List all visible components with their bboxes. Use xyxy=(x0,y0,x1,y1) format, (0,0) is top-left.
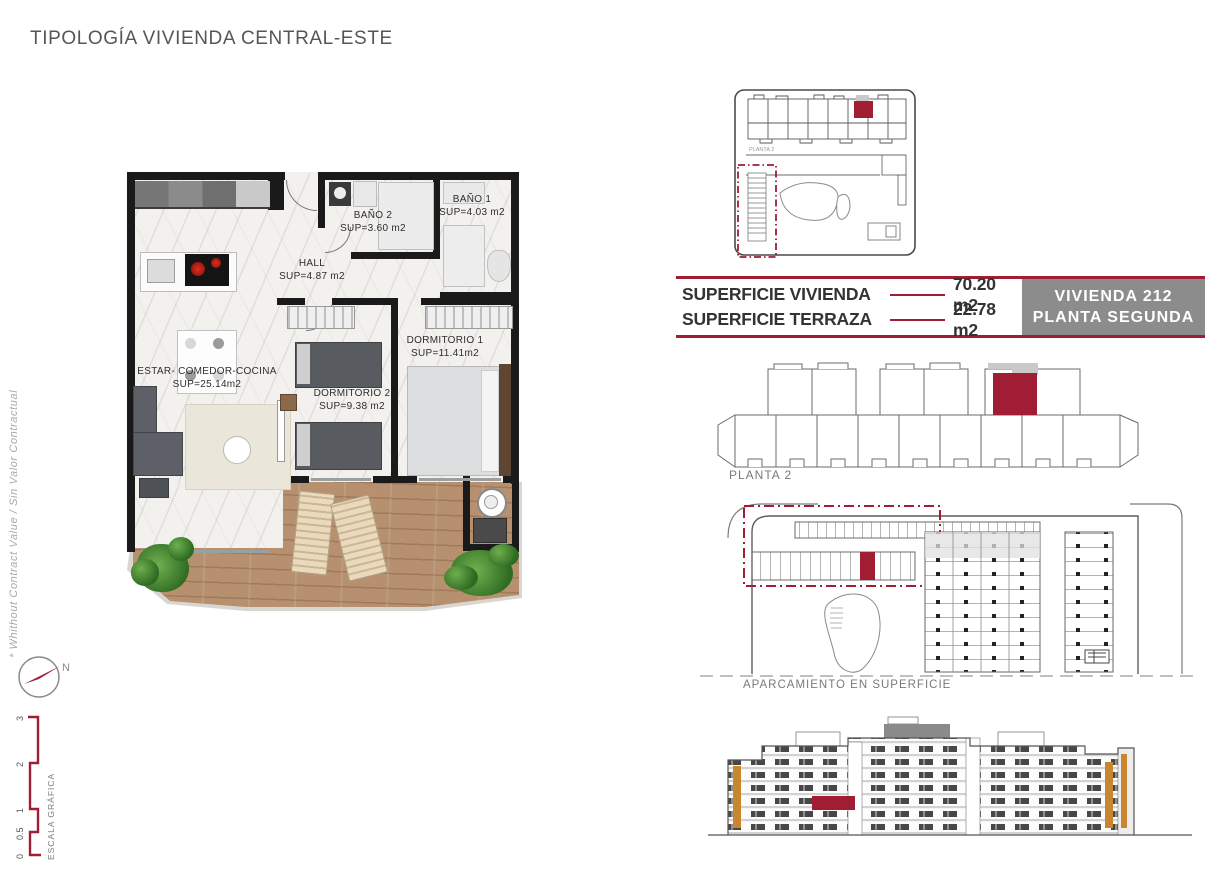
kitchen-sink xyxy=(147,259,175,283)
unit-panel: VIVIENDA 212 PLANTA SEGUNDA xyxy=(1022,279,1205,335)
terrace-door-dorm2 xyxy=(311,478,371,481)
surface-rows: SUPERFICIE VIVIENDA 70.20 m2 SUPERFICIE … xyxy=(676,279,1022,335)
parking-drawing xyxy=(700,492,1195,697)
cooktop-burner xyxy=(211,258,221,268)
plant xyxy=(451,550,513,596)
scale-tick: 3 xyxy=(15,716,25,721)
room-name: DORMITORIO 1 xyxy=(407,334,484,347)
plant xyxy=(137,544,189,592)
wall xyxy=(268,172,284,210)
scale-tick: 1 xyxy=(15,808,25,813)
room-name: BAÑO 2 xyxy=(340,209,406,222)
room-area: SUP=4.03 m2 xyxy=(439,206,505,219)
car-lift xyxy=(1085,650,1109,663)
compass: N xyxy=(16,650,80,706)
wall xyxy=(332,298,394,305)
page-title: TIPOLOGÍA VIVIENDA CENTRAL-ESTE xyxy=(30,28,393,50)
wall xyxy=(463,476,470,550)
wall xyxy=(373,476,417,483)
leader-line xyxy=(890,319,945,321)
dorm1-headboard xyxy=(499,364,511,476)
wall xyxy=(127,172,285,180)
surface-row: SUPERFICIE TERRAZA 22.78 m2 xyxy=(682,307,1014,332)
armchair xyxy=(139,478,169,498)
washer-drum xyxy=(334,187,346,199)
kitchen-counter xyxy=(135,181,270,209)
scale-tick: 0.5 xyxy=(15,827,25,840)
wall xyxy=(433,180,440,258)
scale-tick: 0 xyxy=(15,854,25,859)
wall xyxy=(127,172,135,552)
bath1-shower xyxy=(443,225,485,287)
surface-value: 22.78 m2 xyxy=(953,299,1014,341)
site-plan-label: PLANTA 2 xyxy=(749,147,774,153)
room-name: HALL xyxy=(279,257,345,270)
dorm2-bed-pillow xyxy=(297,344,310,384)
wall xyxy=(391,298,398,482)
stall-row-left xyxy=(752,552,915,580)
room-area: SUP=25.14m2 xyxy=(137,378,276,391)
highlighted-unit-elevation xyxy=(812,796,855,810)
surface-info-table: SUPERFICIE VIVIENDA 70.20 m2 SUPERFICIE … xyxy=(676,276,1205,338)
floor-overview-label: PLANTA 2 xyxy=(729,468,792,482)
room-label-estar: ESTAR- COMEDOR-COCINA SUP=25.14m2 xyxy=(137,365,276,391)
sofa xyxy=(133,386,157,438)
room-area: SUP=3.60 m2 xyxy=(340,222,406,235)
terrace-unit-panel xyxy=(473,518,507,543)
dorm2-bed-pillow xyxy=(297,424,310,466)
dorm2-wardrobe xyxy=(287,306,355,329)
sofa xyxy=(133,432,183,476)
wall xyxy=(512,476,519,552)
scale-bar-title: ESCALA GRÁFICA xyxy=(46,773,56,860)
scale-tick: 2 xyxy=(15,762,25,767)
unit-floor: PLANTA SEGUNDA xyxy=(1022,309,1205,327)
highlighted-unit xyxy=(993,373,1037,415)
landscape-blob xyxy=(825,594,880,672)
plan-sheet: TIPOLOGÍA VIVIENDA CENTRAL-ESTE * Whitho… xyxy=(0,0,1221,877)
terrace-washer-drum xyxy=(484,495,498,509)
leader-line xyxy=(890,294,945,296)
surface-label: SUPERFICIE TERRAZA xyxy=(682,309,882,330)
room-area: SUP=4.87 m2 xyxy=(279,270,345,283)
scale-bar-line xyxy=(28,717,41,855)
room-area: SUP=11.41m2 xyxy=(407,347,484,360)
cooktop-burner xyxy=(191,262,205,276)
coffee-table xyxy=(223,436,251,464)
room-label-dorm2: DORMITORIO 2 SUP=9.38 m2 xyxy=(314,387,391,413)
room-name: ESTAR- COMEDOR-COCINA xyxy=(137,365,276,378)
highlighted-stall xyxy=(860,552,875,580)
site-kiosk xyxy=(868,223,900,240)
ramp xyxy=(748,173,766,241)
scale-ticks: 0 0.5 1 2 3 xyxy=(15,716,25,859)
unit-number: VIVIENDA 212 xyxy=(1022,288,1205,306)
room-label-bano2: BAÑO 2 SUP=3.60 m2 xyxy=(340,209,406,235)
bath2-counter xyxy=(353,181,377,207)
watermark-text: * Whithout Contract Value / Sin Valor Co… xyxy=(8,338,20,658)
surface-label: SUPERFICIE VIVIENDA xyxy=(682,284,882,305)
elevation-drawing xyxy=(700,702,1200,867)
dorm1-wardrobe xyxy=(425,306,513,329)
highlighted-unit xyxy=(854,101,873,118)
compass-north-label: N xyxy=(62,662,70,674)
room-label-hall: HALL SUP=4.87 m2 xyxy=(279,257,345,283)
wall xyxy=(318,180,325,228)
plate xyxy=(213,338,224,349)
bath1-toilet xyxy=(487,250,511,282)
room-area: SUP=9.38 m2 xyxy=(314,400,391,413)
wall xyxy=(318,172,519,180)
wall xyxy=(421,298,519,305)
room-label-dorm1: DORMITORIO 1 SUP=11.41m2 xyxy=(407,334,484,360)
structure-stipple xyxy=(925,532,1040,558)
room-label-bano1: BAÑO 1 SUP=4.03 m2 xyxy=(439,193,505,219)
wall xyxy=(351,252,440,259)
floor-plan: ESTAR- COMEDOR-COCINA SUP=25.14m2 HALL S… xyxy=(125,170,525,625)
highlight-cap xyxy=(856,95,869,102)
site-plan-drawing: PLANTA 2 xyxy=(710,75,950,265)
building-mass xyxy=(728,738,1134,835)
wall xyxy=(277,298,305,305)
unit-band xyxy=(718,415,1138,467)
terrace-door-dorm1 xyxy=(419,478,501,481)
plate xyxy=(185,338,196,349)
parking-label: APARCAMIENTO EN SUPERFICIE xyxy=(743,679,951,691)
compass-needle xyxy=(24,666,60,684)
room-name: BAÑO 1 xyxy=(439,193,505,206)
dorm2-nightstand xyxy=(280,394,297,411)
scale-bar: 0 0.5 1 2 3 ESCALA GRÁFICA xyxy=(8,712,64,864)
room-name: DORMITORIO 2 xyxy=(314,387,391,400)
dorm1-bed-pillows xyxy=(481,370,499,472)
